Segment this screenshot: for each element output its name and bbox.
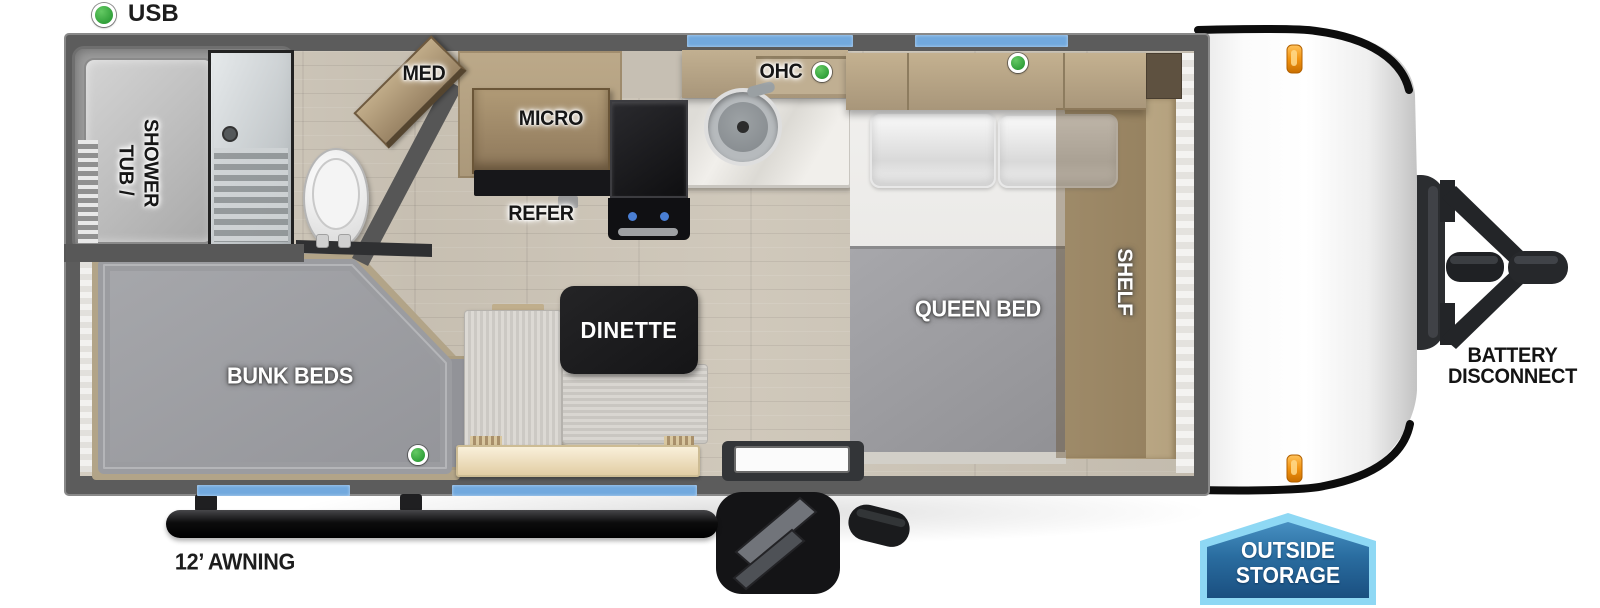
dinette-seat-back-right: [562, 364, 708, 444]
range-hood-area: [622, 51, 682, 98]
tub-shower-label-line2: SHOWER: [139, 119, 162, 207]
window: [197, 485, 350, 496]
outside-storage-text: OUTSIDE STORAGE: [1205, 538, 1371, 588]
microwave: [472, 88, 610, 174]
outside-storage-line1: OUTSIDE: [1205, 538, 1371, 563]
dinette-table: [456, 445, 700, 477]
range-knob: [628, 212, 637, 221]
window: [452, 485, 697, 496]
range-handle: [618, 228, 678, 236]
front-corner-cabinet: [1146, 53, 1182, 99]
micro-label: MICRO: [519, 107, 583, 131]
sink-drain: [737, 121, 749, 133]
ohc-label: OHC: [759, 60, 802, 84]
bunk-beds-label: BUNK BEDS: [227, 363, 353, 390]
entry-steps: [700, 478, 930, 608]
cabinet-seam: [907, 53, 909, 110]
refrigerator-front: [474, 170, 622, 196]
med-label: MED: [402, 62, 445, 86]
bed-foot-strip: [848, 450, 1066, 464]
dinette-label: DINETTE: [581, 317, 678, 344]
rv-floorplan-diagram: DINETTE TUB / SHOWER MED MICRO REFER OHC…: [0, 0, 1600, 608]
range-cooktop: [610, 100, 688, 198]
awning-tube: [166, 510, 718, 538]
bathroom-wall: [64, 244, 304, 262]
tub-drain: [222, 126, 238, 142]
toilet-hinge: [316, 234, 329, 248]
usb-indicator-queen-bed: [1008, 53, 1028, 73]
usb-indicator-legend: [92, 3, 116, 27]
range-knob: [660, 212, 669, 221]
dinette-seat-back-left: [464, 310, 562, 452]
bedroom-overhead-cabinet: [846, 53, 1146, 110]
shelf-label: SHELF: [1112, 248, 1136, 315]
tub-shower-label-line1: TUB /: [114, 145, 137, 196]
window: [915, 35, 1068, 47]
queen-bed-blanket: [850, 246, 1065, 452]
battery-line1: BATTERY: [1429, 345, 1595, 366]
toilet-hinge: [338, 234, 351, 248]
pillow: [870, 112, 996, 188]
outside-storage-line2: STORAGE: [1205, 563, 1371, 588]
awning-label: 12’ AWNING: [175, 549, 295, 576]
usb-indicator-bunk: [408, 445, 428, 465]
window: [687, 35, 853, 47]
dinette-badge: DINETTE: [560, 286, 698, 374]
battery-line2: DISCONNECT: [1429, 366, 1595, 387]
front-wall-strip: [1176, 53, 1194, 473]
tub-ribs: [78, 140, 98, 244]
battery-disconnect-label: BATTERY DISCONNECT: [1429, 345, 1595, 387]
shower-mat-slats: [214, 148, 288, 242]
cabinet-seam: [1063, 53, 1065, 110]
usb-indicator-ohc: [812, 62, 832, 82]
entry-door: [734, 446, 850, 473]
queen-bed-label: QUEEN BED: [915, 296, 1041, 323]
hitch-a-frame: [1395, 175, 1568, 350]
usb-legend-label: USB: [128, 0, 179, 28]
toilet-seat: [312, 158, 360, 230]
front-cap: [1195, 28, 1417, 490]
refer-label: REFER: [508, 202, 574, 226]
